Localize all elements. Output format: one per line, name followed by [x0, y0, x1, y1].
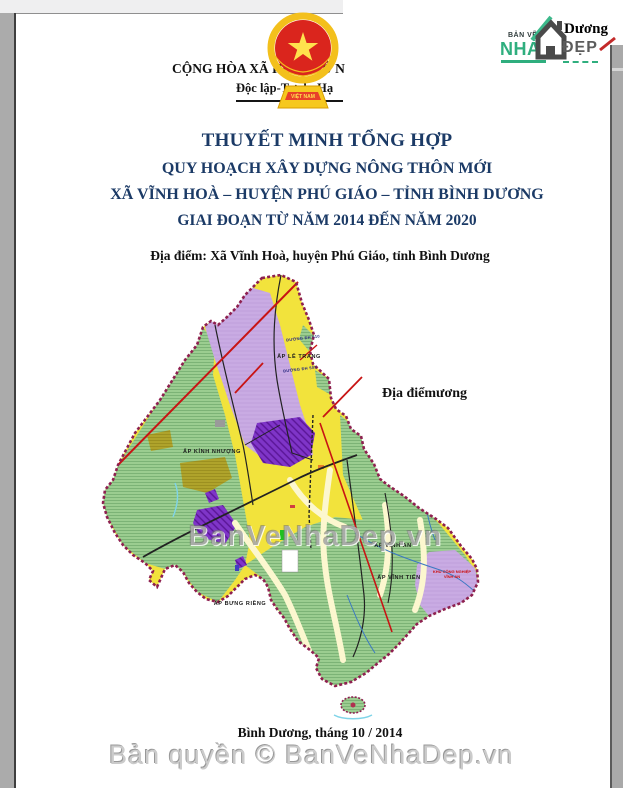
copyright-watermark: Bản quyền © BanVeNhaDep.vn — [0, 740, 623, 771]
logo-duong-text: Dương — [564, 21, 608, 38]
map-side-note: Địa điểmương — [382, 386, 467, 402]
doc-title-line3: XÃ VĨNH HOÀ – HUYỆN PHÚ GIÁO – TỈNH BÌNH… — [29, 186, 623, 204]
viewer-left-margin — [0, 13, 14, 788]
map-label-le-trang: ẤP LỄ TRANG — [277, 354, 321, 360]
title-block: THUYẾT MINH TỔNG HỢP QUY HOẠCH XÂY DỰNG … — [15, 130, 623, 230]
emblem-banner-text: VIỆT NAM — [291, 92, 315, 100]
map-label-bung-rieng: ẤP BƯNG RIỀNG — [214, 601, 267, 607]
banvenhadep-logo: BẢN VẼ NHÀ ĐẸP Dương — [500, 12, 618, 70]
logo-dep-text: ĐẸP — [562, 39, 598, 57]
map-label-kinh-nhuong: ẤP KỈNH NHƯỢNG — [183, 449, 241, 455]
doc-title-line1: THUYẾT MINH TỔNG HỢP — [29, 130, 623, 152]
doc-title-line2: QUY HOẠCH XÂY DỰNG NÔNG THÔN MỚI — [29, 160, 623, 178]
map-watermark: BanVeNhaDep.vn — [185, 520, 445, 553]
logo-dashed-underline — [563, 61, 598, 63]
map-label-vinh-tien: ẤP VĨNH TIẾN — [377, 575, 420, 581]
map-fragment — [328, 693, 378, 723]
map-label-kcn-vinh-an: KHU CÔNG NGHIỆP VĨNH AN — [429, 569, 475, 579]
date-line: Bình Dương, tháng 10 / 2014 — [15, 725, 623, 741]
doc-title-line4: GIAI ĐOẠN TỪ NĂM 2014 ĐẾN NĂM 2020 — [29, 212, 623, 230]
location-line: Địa điểm: Xã Vĩnh Hoà, huyện Phú Giáo, t… — [15, 248, 623, 264]
vietnam-emblem-icon: VIỆT NAM — [258, 12, 348, 112]
landuse-map — [85, 265, 485, 725]
